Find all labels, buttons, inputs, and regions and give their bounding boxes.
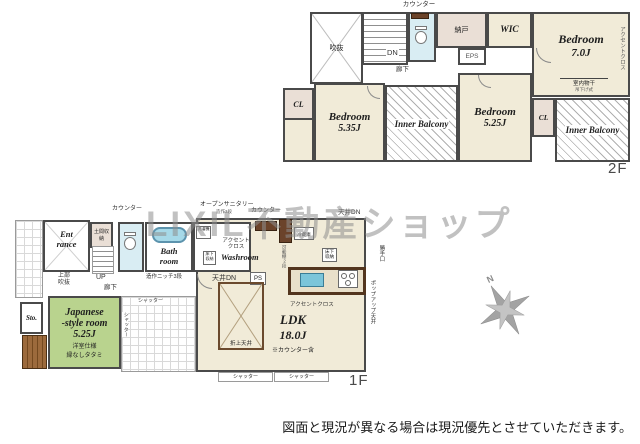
f2-bedroom-535-annex — [283, 118, 314, 162]
f2-hallway-label: 廊下 — [396, 66, 409, 73]
f2-storage-room: 納戸 — [436, 12, 487, 48]
f2-storage-label: 納戸 — [438, 14, 485, 46]
f1-coffered-ceiling: 折上天井 — [218, 282, 264, 350]
f1-shutter-label-top: シャッター — [137, 299, 164, 305]
f1-storage: Sto. — [20, 302, 43, 334]
f2-stairs — [362, 12, 408, 65]
burner-icon — [341, 273, 347, 279]
f1-doma-label: 土間収納 — [92, 224, 111, 246]
f1-terrace — [121, 296, 196, 372]
f2-wic-label: WIC — [489, 14, 530, 46]
f1-stairs-up — [92, 246, 114, 274]
f1-movable-shelf-label: 可動棚2段 — [282, 245, 287, 268]
f2-closet-right: CL — [532, 98, 555, 137]
f1-hallway-label: 廊下 — [104, 284, 117, 291]
f1-japanese-room-label: Japanese -style room 5.25J 洋室仕様 縁なしタタミ — [50, 298, 119, 367]
f1-upper-void-label: 上部吹抜 — [57, 273, 71, 287]
f1-japanese-room: Japanese -style room 5.25J 洋室仕様 縁なしタタミ — [48, 296, 121, 369]
f2-toilet-counter — [411, 13, 429, 19]
f1-doma-storage: 土間収納 — [90, 222, 113, 248]
burner-icon — [349, 273, 355, 279]
f1-floor-label: 1F — [349, 372, 369, 389]
f1-coffered-ceiling-label: 折上天井 — [220, 339, 262, 347]
f1-ldk-label: LDK 18.0J ※カウンター含 — [263, 312, 323, 354]
burner-icon — [345, 280, 351, 286]
f2-accent-cloth-label: アクセントクロス — [618, 26, 626, 70]
f2-inner-balcony-2: Inner Balcony — [555, 98, 630, 162]
f2-counter-label: カウンター — [403, 1, 436, 8]
f1-shutter-box-1: シャッター — [218, 372, 273, 382]
f2-dn-label: DN — [386, 49, 399, 58]
f2-eps: EPS — [458, 48, 486, 65]
f1-floor-storage-2: 床下収納 — [322, 248, 337, 262]
f2-closet-left-label: CL — [285, 90, 312, 118]
f2-eps-label: EPS — [460, 50, 484, 63]
f1-shutter-box-2: シャッター — [274, 372, 329, 382]
f2-floor-label: 2F — [608, 160, 628, 177]
f1-up-label: UP — [96, 274, 106, 282]
f2-closet-left: CL — [283, 88, 314, 120]
f2-atrium: 吹抜 — [310, 12, 363, 84]
f2-inner-balcony-1: Inner Balcony — [385, 85, 458, 162]
f2-bedroom-525: Bedroom 5.25J — [458, 73, 532, 162]
f1-entrance: Ent rance — [43, 220, 90, 272]
f2-bedroom-525-name: Bedroom 5.25J — [460, 75, 530, 160]
f2-inner-balcony-2-label: Inner Balcony — [557, 100, 628, 160]
f1-niche-label: 造作ニッチ3段 — [146, 274, 182, 280]
f1-counter1-label: カウンター — [112, 206, 142, 213]
f1-accent-cloth-2-label: アクセントクロス — [290, 302, 334, 308]
f1-back-door-label: 勝手口 — [378, 245, 384, 262]
f1-porch — [15, 220, 43, 298]
watermark: LIXIL不動産ショップ — [146, 196, 513, 247]
f1-popup-ceiling-label: ポップアップ天井 — [369, 280, 375, 324]
f2-closet-right-label: CL — [534, 100, 553, 135]
floor-plan-sheet: カウンター 吹抜 DN 納戸 EPS WIC 廊下 Bedroom 7.0J ア… — [0, 0, 640, 444]
toilet-icon — [415, 26, 427, 44]
f1-shutter-label-side: シャッター — [122, 312, 128, 337]
f1-floor-storage-1: 床下収納 — [203, 251, 216, 265]
f1-washroom-label: Washroom — [221, 253, 259, 263]
compass-icon — [476, 281, 534, 339]
f1-entrance-label: Ent rance — [45, 222, 88, 270]
sink-icon — [300, 273, 324, 287]
f2-inner-balcony-1-label: Inner Balcony — [387, 87, 456, 160]
f1-storage-label: Sto. — [22, 304, 41, 332]
wood-deck — [22, 335, 47, 369]
f2-drying-rack: 室内物干 吊下げ式 — [560, 78, 608, 93]
toilet-icon — [124, 232, 136, 250]
f2-wic: WIC — [487, 12, 532, 48]
f2-atrium-label: 吹抜 — [312, 14, 361, 82]
disclaimer-text: 図面と現況が異なる場合は現況優先とさせていただきます。 — [282, 417, 632, 436]
